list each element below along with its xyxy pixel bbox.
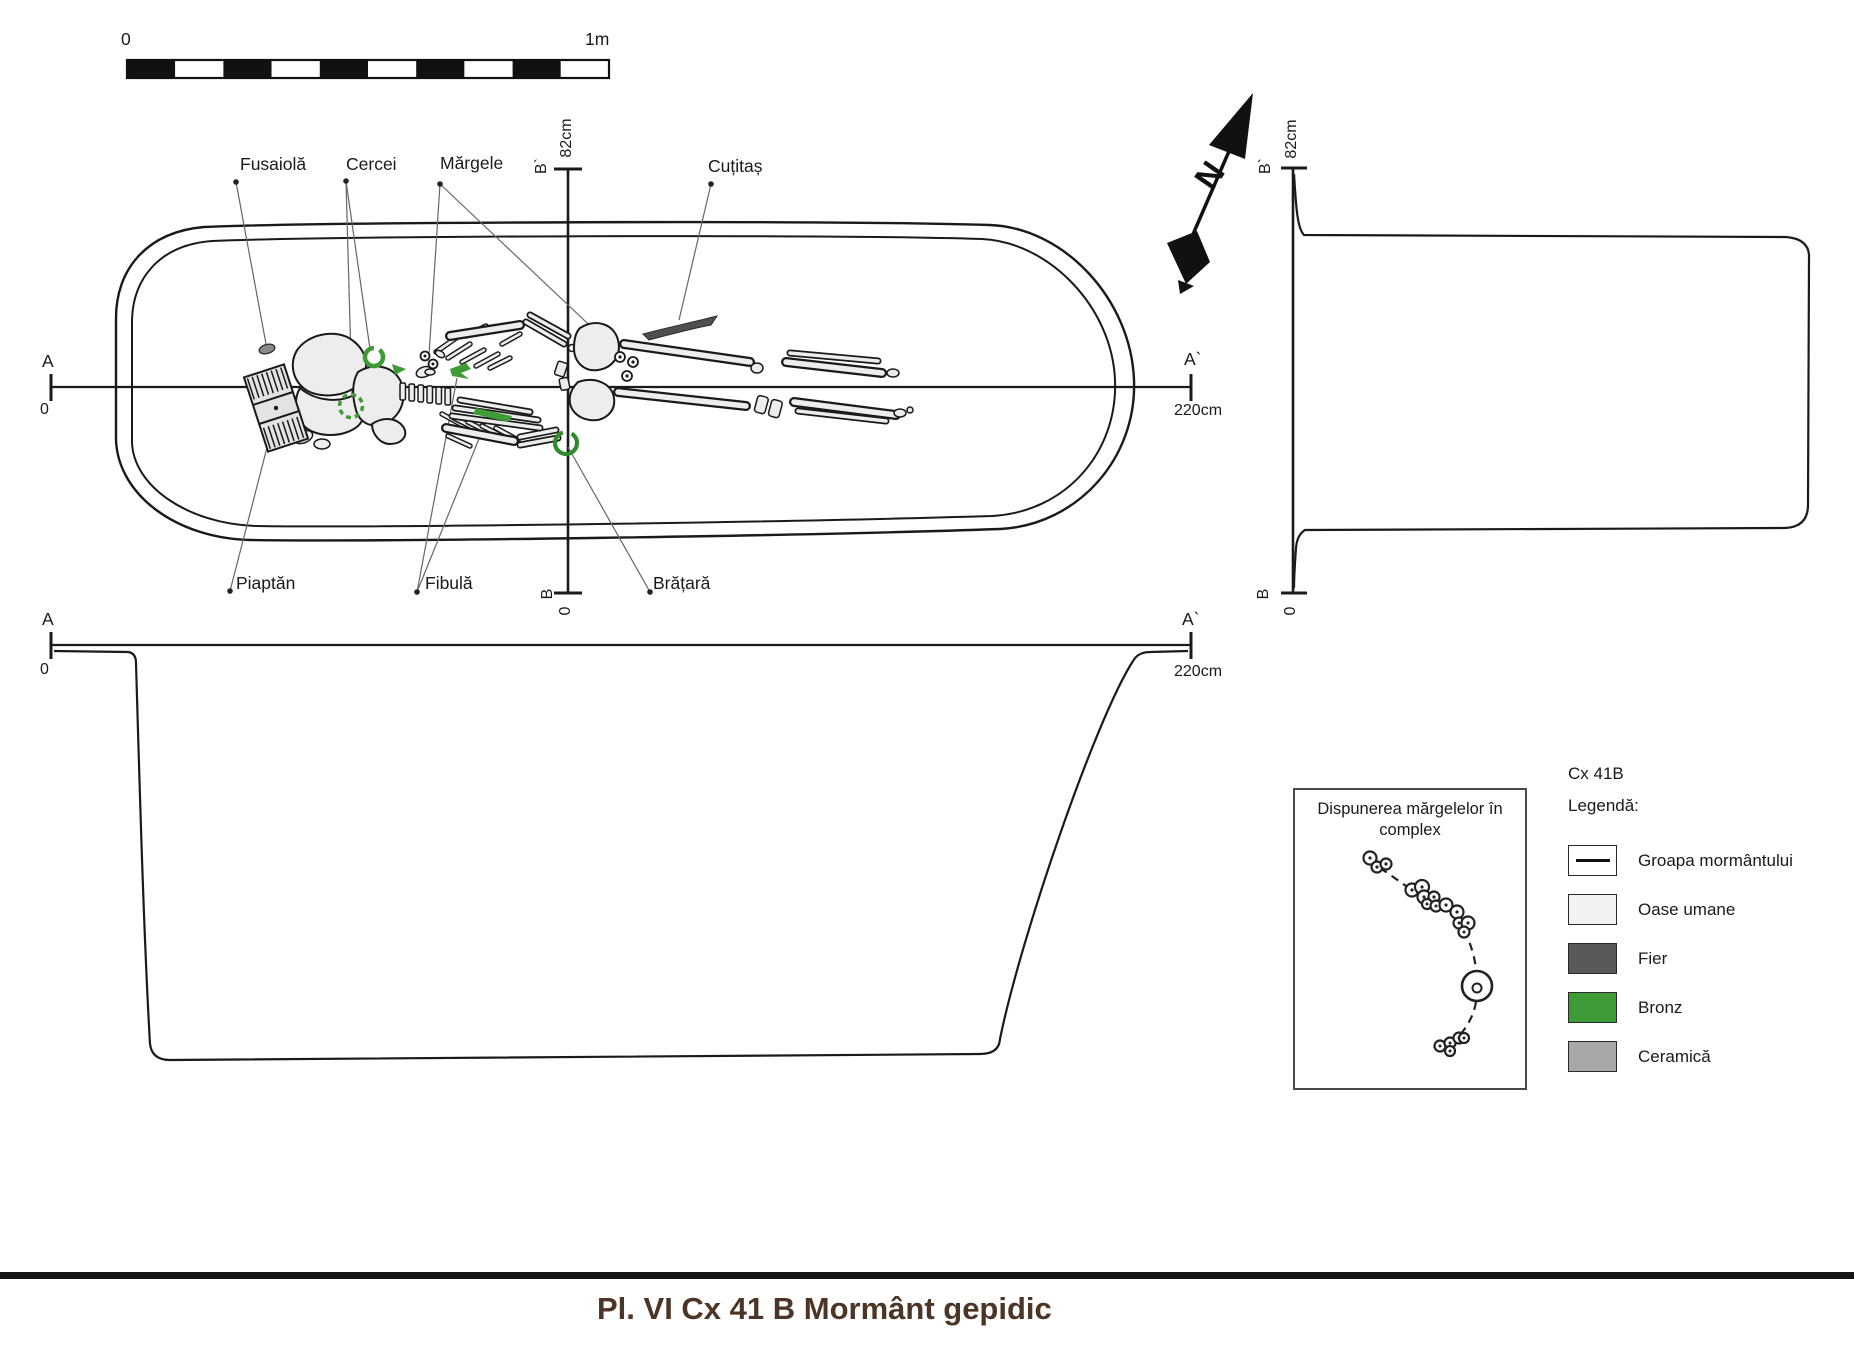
section-bb-depth: 82cm — [1284, 119, 1300, 158]
human-bones-swatch — [1568, 894, 1617, 925]
plan-b-prime-label: B` — [534, 158, 550, 174]
plate-caption: Pl. VI Cx 41 B Mormânt gepidic — [597, 1291, 1052, 1327]
plan-a-label: A — [42, 352, 54, 370]
section-aa-a: A — [42, 610, 54, 628]
legend: Groapa mormântului Oase umane Fier Bronz… — [1568, 845, 1793, 1090]
label-cutitas: Cuțitaș — [708, 157, 762, 175]
legend-item-bronze: Bronz — [1568, 992, 1793, 1023]
grave-pit-swatch — [1568, 845, 1617, 876]
legend-item-ceramic: Ceramică — [1568, 1041, 1793, 1072]
label-margele: Mărgele — [440, 154, 503, 172]
label-fibula: Fibulă — [425, 574, 473, 592]
section-aa-a-prime: A` — [1182, 610, 1200, 628]
legend-item-grave-pit: Groapa mormântului — [1568, 845, 1793, 876]
legend-item-human-bones: Oase umane — [1568, 894, 1793, 925]
section-bb — [1281, 168, 1809, 593]
plate-canvas: N — [0, 0, 1854, 1353]
legend-item-iron: Fier — [1568, 943, 1793, 974]
section-bb-b-prime: B` — [1258, 158, 1274, 174]
bead-inset-box: Dispunerea mărgelelor în complex — [1293, 788, 1527, 1090]
skeleton — [292, 315, 913, 449]
site-plan-drawing: N — [0, 0, 1854, 1353]
pelvis — [570, 323, 619, 420]
section-aa-zero: 0 — [40, 662, 49, 679]
section-bb-b: B — [1256, 589, 1272, 600]
ceramic-swatch — [1568, 1041, 1617, 1072]
leg-bones — [618, 344, 913, 421]
scale-bar-end: 1m — [585, 30, 609, 48]
legend-context: Cx 41B — [1568, 764, 1624, 784]
scale-bar — [127, 60, 609, 78]
label-piaptan: Piaptăn — [236, 574, 295, 592]
spindle-whorl-fusaiola — [258, 343, 276, 356]
knife-cutitas — [643, 316, 717, 340]
bead-inset-title: Dispunerea mărgelelor în complex — [1295, 799, 1525, 842]
legend-heading: Legendă: — [1568, 796, 1639, 816]
section-aa-length: 220cm — [1174, 664, 1222, 681]
plan-a-zero: 0 — [40, 402, 49, 419]
section-aa — [51, 632, 1191, 1060]
scale-bar-start: 0 — [121, 30, 131, 48]
bronze-swatch — [1568, 992, 1617, 1023]
north-arrow-icon: N — [1167, 93, 1253, 294]
section-bb-zero: 0 — [1283, 607, 1299, 616]
label-cercei: Cercei — [346, 155, 397, 173]
plan-b-depth: 82cm — [559, 118, 575, 157]
plan-a-prime-label: A` — [1184, 350, 1202, 368]
plan-a-length: 220cm — [1174, 403, 1222, 420]
caption-rule — [0, 1272, 1854, 1279]
plan-b-label: B — [540, 589, 556, 600]
iron-swatch — [1568, 943, 1617, 974]
label-bratara: Brățară — [653, 574, 710, 592]
plan-b-zero: 0 — [558, 607, 574, 616]
label-fusaiola: Fusaiolă — [240, 155, 306, 173]
